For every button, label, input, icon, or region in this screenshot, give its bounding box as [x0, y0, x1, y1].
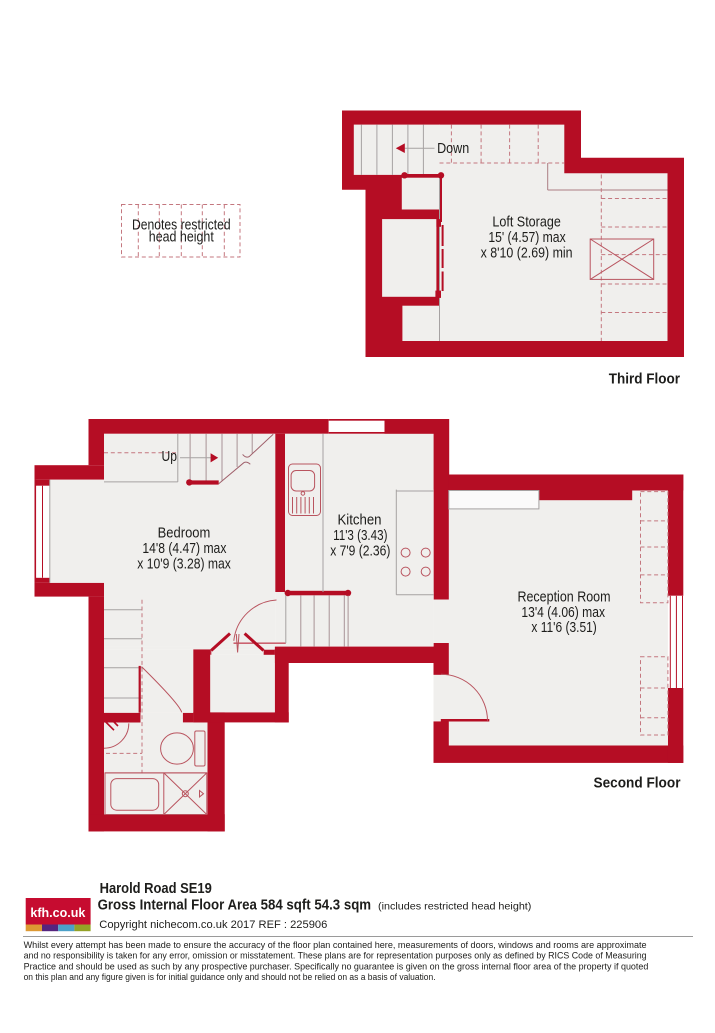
svg-text:Down: Down	[437, 141, 469, 157]
svg-text:Third Floor: Third Floor	[609, 371, 680, 388]
svg-text:Loft Storage: Loft Storage	[492, 215, 561, 231]
svg-text:x 10'9 (3.28) max: x 10'9 (3.28) max	[137, 556, 231, 572]
svg-text:Copyright nichecom.co.uk 2017: Copyright nichecom.co.uk 2017 REF : 2259…	[99, 919, 327, 931]
svg-text:11'3 (3.43): 11'3 (3.43)	[333, 528, 387, 544]
svg-text:13'4 (4.06) max: 13'4 (4.06) max	[521, 605, 605, 621]
svg-text:Up: Up	[162, 449, 178, 465]
svg-text:Kitchen: Kitchen	[337, 512, 381, 528]
svg-text:(includes restricted head heig: (includes restricted head height)	[378, 900, 531, 912]
svg-text:Bedroom: Bedroom	[158, 525, 211, 541]
svg-text:Second Floor: Second Floor	[594, 774, 681, 791]
svg-text:Gross Internal Floor Area 584: Gross Internal Floor Area 584 sqft 54.3 …	[98, 897, 372, 913]
svg-text:Practice and should be used as: Practice and should be used as such by a…	[24, 961, 649, 971]
svg-text:Harold Road SE19: Harold Road SE19	[100, 880, 212, 897]
svg-text:Reception Room: Reception Room	[517, 590, 610, 606]
svg-text:kfh.co.uk: kfh.co.uk	[30, 905, 86, 920]
svg-text:14'8 (4.47) max: 14'8 (4.47) max	[142, 541, 226, 557]
svg-text:on this plan and any figure gi: on this plan and any figure given is for…	[24, 972, 436, 982]
svg-text:head height: head height	[149, 230, 214, 246]
svg-text:Whilst every attempt has been: Whilst every attempt has been made to en…	[24, 940, 647, 950]
svg-text:and no responsibility is taken: and no responsibility is taken for any e…	[24, 951, 647, 961]
svg-text:x 7'9 (2.36): x 7'9 (2.36)	[330, 543, 390, 559]
svg-text:x 8'10 (2.69) min: x 8'10 (2.69) min	[481, 245, 573, 261]
svg-text:x 11'6 (3.51): x 11'6 (3.51)	[531, 620, 596, 636]
svg-text:15' (4.57) max: 15' (4.57) max	[488, 230, 565, 246]
